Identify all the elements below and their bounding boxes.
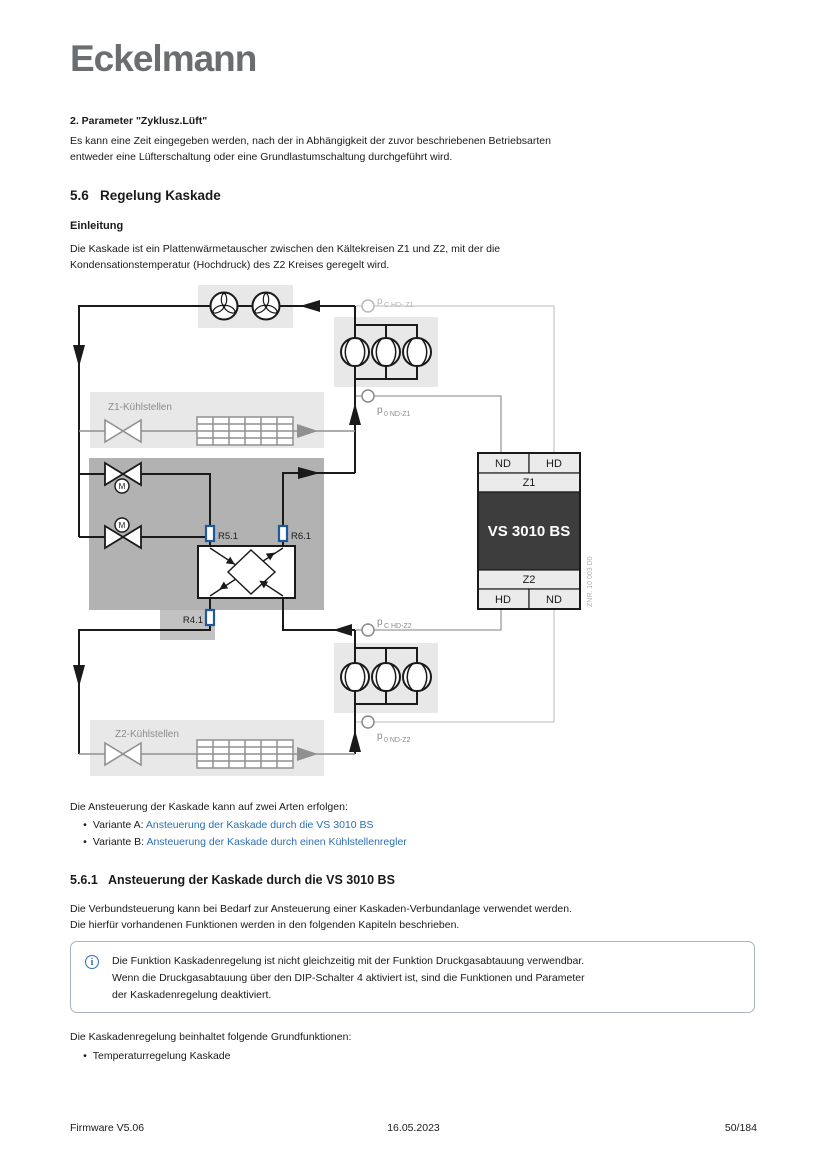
z1-compressors [341,338,431,366]
condenser-flow-arrow-icon [300,300,320,312]
variant-a-link[interactable]: Ansteuerung der Kaskade durch die VS 301… [146,819,374,831]
controller-nd-bottom-label: ND [546,594,562,606]
compressor-icon [372,663,400,691]
fan-icon [211,293,238,320]
z2-down-arrow-icon [73,665,85,687]
section-title: Regelung Kaskade [100,188,221,203]
section-5-6-heading: 5.6Regelung Kaskade [70,188,221,203]
drawing-number-label: ZNR. 10 003 D0 [587,556,594,607]
compressor-icon [372,338,400,366]
paragraph-line: Es kann eine Zeit eingegeben werden, nac… [70,133,551,149]
svg-text:p: p [377,405,383,416]
r61-sensor-icon [279,526,287,541]
z2-discharge-arrow-icon [333,624,352,636]
footer-date: 16.05.2023 [0,1122,827,1134]
z2-kuehlstellen-label: Z2-Kühlstellen [115,729,179,740]
hd-z1-pressure-label: p C HD- Z1 [377,296,414,309]
z1-kuehlstellen-label: Z1-Kühlstellen [108,402,172,413]
r61-label: R6.1 [291,531,311,542]
footer-page-number: 50/184 [725,1122,757,1134]
svg-text:p: p [377,296,383,307]
paragraph-line: entweder eine Lüfterschaltung oder eine … [70,149,551,165]
bullet-icon: • [80,1050,90,1062]
variant-b-link[interactable]: Ansteuerung der Kaskade durch einen Kühl… [146,836,406,848]
z2-evaporator-grid-icon [197,740,293,768]
info-note-text: Die Funktion Kaskadenregelung ist nicht … [112,953,585,1004]
cascade-schematic-diagram: M M [0,285,827,785]
nd-z2-sensor-icon [362,716,374,728]
variant-b-prefix: Variante B: [93,836,147,848]
nd-z1-pressure-label: p 0 ND-Z1 [377,405,411,418]
paragraph-line: Die Verbundsteuerung kann bei Bedarf zur… [70,901,572,917]
variants-intro: Die Ansteuerung der Kaskade kann auf zwe… [70,799,348,815]
parameter-heading: 2. Parameter "Zyklusz.Lüft" [70,115,207,127]
svg-text:p: p [377,617,383,628]
einleitung-paragraph: Die Kaskade ist ein Plattenwärmetauscher… [70,241,500,273]
section-5-6-1-heading: 5.6.1Ansteuerung der Kaskade durch die V… [70,873,395,887]
parameter-paragraph: Es kann eine Zeit eingegeben werden, nac… [70,133,551,165]
controller-hd-bottom-label: HD [495,594,511,606]
compressor-icon [341,338,369,366]
hd-z1-sensor-icon [362,300,374,312]
svg-text:C HD-Z2: C HD-Z2 [384,623,412,630]
controller-nd-top-label: ND [495,458,511,470]
z2-suction-up-arrow-icon [349,730,361,752]
info-line: Wenn die Druckgasabtauung über den DIP-S… [112,970,585,987]
bullet-icon: • [80,819,90,831]
z1-down-arrow-icon [73,345,85,367]
einleitung-heading: Einleitung [70,220,123,232]
r41-label: R4.1 [183,615,203,626]
r41-sensor-icon [206,610,214,625]
plate-heat-exchanger-icon [198,546,295,598]
section-title: Ansteuerung der Kaskade durch die VS 301… [108,873,395,887]
grundfunktion-text: Temperaturregelung Kaskade [93,1050,231,1062]
bullet-icon: • [80,836,90,848]
controller-z1-label: Z1 [523,477,536,489]
controller-name-label: VS 3010 BS [488,523,571,540]
section-number: 5.6 [70,188,100,203]
nd-z1-sensor-icon [362,390,374,402]
hd-z2-sensor-icon [362,624,374,636]
motor-letter: M [119,521,126,530]
info-note-box: i Die Funktion Kaskadenregelung ist nich… [70,941,755,1013]
vs3010bs-controller: ND HD Z1 VS 3010 BS Z2 HD ND ZNR. 10 003… [478,453,594,609]
controller-hd-top-label: HD [546,458,562,470]
info-line: Die Funktion Kaskadenregelung ist nicht … [112,953,585,970]
variant-a-prefix: Variante A: [93,819,146,831]
compressor-icon [341,663,369,691]
info-icon: i [85,955,99,969]
paragraph-line: Die hierfür vorhandenen Funktionen werde… [70,917,572,933]
variant-a-item: • Variante A: Ansteuerung der Kaskade du… [80,819,374,831]
svg-text:0 ND-Z2: 0 ND-Z2 [384,737,411,744]
paragraph-line: Kondensationstemperatur (Hochdruck) des … [70,257,500,273]
svg-text:p: p [377,731,383,742]
grundfunktionen-intro: Die Kaskadenregelung beinhaltet folgende… [70,1029,351,1045]
compressor-icon [403,663,431,691]
z2-compressors [341,663,431,691]
z1-suction-up-arrow-icon [349,403,361,425]
section-number: 5.6.1 [70,873,108,887]
section-5-6-1-paragraph: Die Verbundsteuerung kann bei Bedarf zur… [70,901,572,933]
svg-text:C HD- Z1: C HD- Z1 [384,302,414,309]
grundfunktion-item: • Temperaturregelung Kaskade [80,1050,231,1062]
paragraph-line: Die Kaskade ist ein Plattenwärmetauscher… [70,241,500,257]
compressor-icon [403,338,431,366]
fan-icon [253,293,280,320]
r51-label: R5.1 [218,531,238,542]
controller-z2-label: Z2 [523,574,536,586]
variant-b-item: • Variante B: Ansteuerung der Kaskade du… [80,836,407,848]
info-line: der Kaskadenregelung deaktiviert. [112,987,585,1004]
motor-letter: M [119,482,126,491]
svg-text:0 ND-Z1: 0 ND-Z1 [384,411,411,418]
hd-z2-pressure-label: p C HD-Z2 [377,617,412,630]
nd-z2-pressure-label: p 0 ND-Z2 [377,731,411,744]
document-page: Eckelmann 2. Parameter "Zyklusz.Lüft" Es… [0,0,827,1169]
z1-evaporator-grid-icon [197,417,293,445]
r51-sensor-icon [206,526,214,541]
eckelmann-logo: Eckelmann [70,38,256,80]
